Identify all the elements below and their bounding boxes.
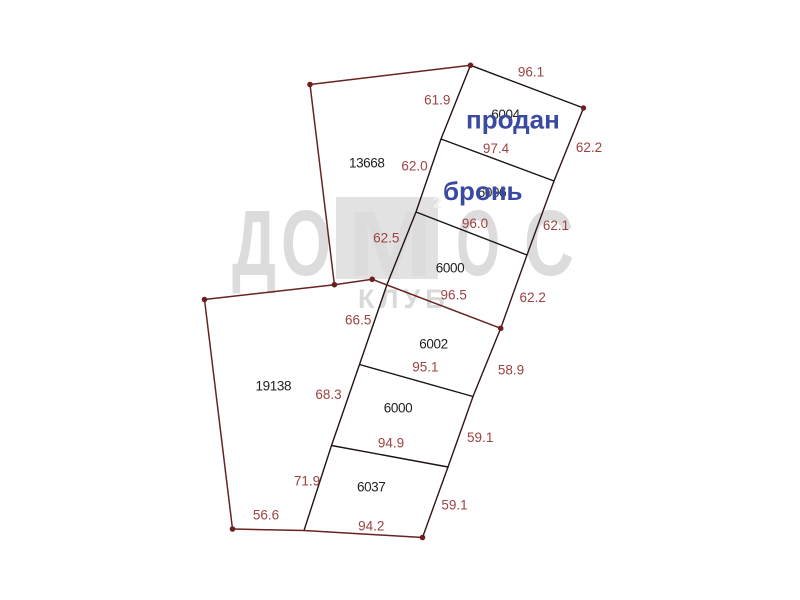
svg-text:О: О: [281, 191, 331, 295]
svg-text:62.0: 62.0: [401, 159, 427, 174]
svg-text:61.9: 61.9: [424, 93, 450, 108]
svg-text:Д: Д: [232, 191, 276, 295]
svg-text:66.5: 66.5: [345, 313, 371, 328]
svg-text:6002: 6002: [419, 337, 447, 352]
svg-text:бронь: бронь: [443, 176, 523, 206]
svg-text:95.1: 95.1: [412, 360, 438, 375]
svg-text:96.1: 96.1: [518, 65, 544, 80]
svg-text:62.1: 62.1: [543, 218, 569, 233]
svg-text:94.2: 94.2: [358, 518, 384, 533]
svg-text:71.9: 71.9: [294, 474, 320, 489]
svg-text:продан: продан: [466, 105, 560, 135]
svg-text:13668: 13668: [349, 156, 385, 171]
svg-text:6000: 6000: [436, 260, 464, 275]
svg-text:О: О: [456, 191, 500, 295]
svg-text:94.9: 94.9: [378, 436, 404, 451]
svg-text:КЛУБ: КЛУБ: [358, 284, 450, 314]
svg-text:59.1: 59.1: [467, 430, 493, 445]
svg-text:96.5: 96.5: [441, 288, 467, 303]
svg-text:19138: 19138: [256, 378, 292, 393]
svg-text:6000: 6000: [384, 401, 412, 416]
svg-text:96.0: 96.0: [462, 216, 488, 231]
svg-text:68.3: 68.3: [315, 387, 341, 402]
svg-text:59.1: 59.1: [441, 498, 467, 513]
svg-text:62.5: 62.5: [373, 230, 399, 245]
svg-text:58.9: 58.9: [498, 363, 524, 378]
svg-text:97.4: 97.4: [483, 141, 510, 156]
svg-text:56.6: 56.6: [253, 508, 279, 523]
svg-text:62.2: 62.2: [520, 290, 546, 305]
svg-text:62.2: 62.2: [576, 140, 602, 155]
svg-text:2: 2: [433, 195, 442, 212]
svg-text:6037: 6037: [357, 479, 385, 494]
